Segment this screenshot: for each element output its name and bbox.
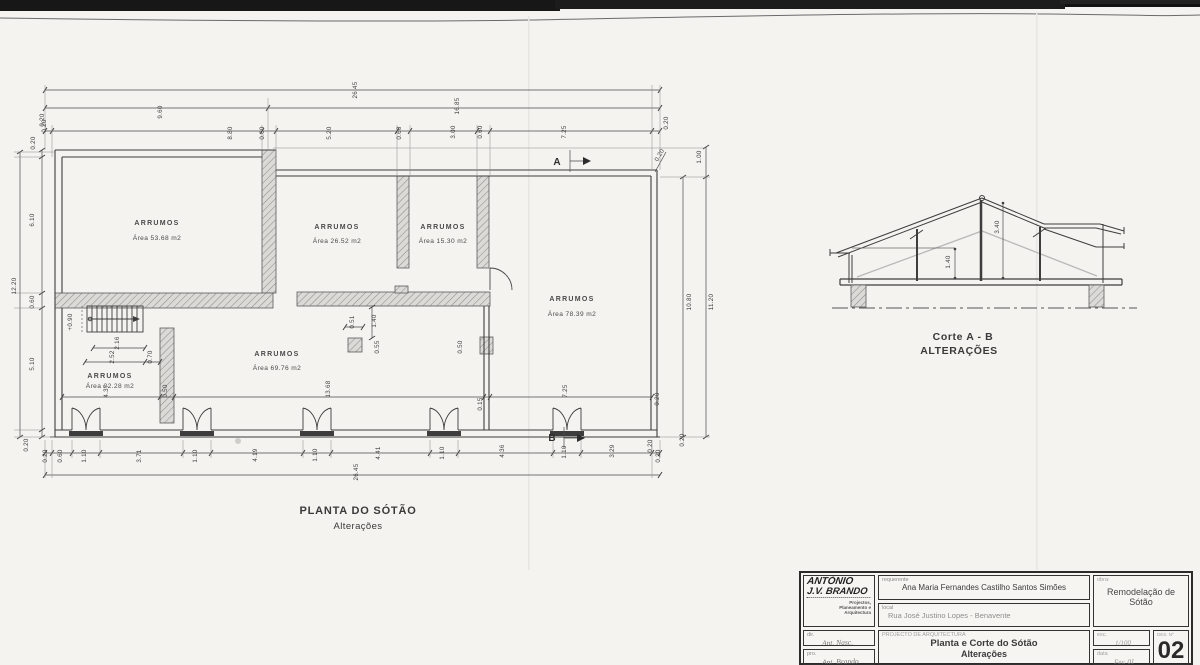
obra-line1: Remodelação de [1097, 587, 1185, 597]
plan-subtitle: Alterações [334, 521, 383, 532]
title-block-obra-cell: obra: Remodelação de Sótão [1093, 575, 1189, 627]
dimension-label: 5.10 [29, 357, 36, 371]
dimension-label: 0.60 [29, 295, 36, 309]
dimension-label: 2.52 [109, 350, 116, 364]
section-caption-sub: ALTERAÇÕES [920, 344, 998, 357]
dimension-label: 0.60 [57, 449, 64, 463]
dimension-label: 3.00 [450, 125, 457, 139]
dimension-label: 0.50 [457, 340, 464, 354]
esc-label: esc. [1097, 632, 1107, 638]
dimension-label: +0.90 [67, 313, 74, 330]
dimension-label: 11.20 [708, 293, 715, 310]
dimension-label: 0.20 [679, 433, 686, 447]
dir-label: dir. [807, 632, 814, 638]
floor-plan: 26.459.6016.850.208.800.605.200.603.000.… [11, 81, 715, 532]
logo-small-3: Arquitectura [807, 610, 871, 615]
section-mark-letter: B [548, 433, 555, 444]
des-value: 02 [1157, 638, 1185, 664]
plan-title: PLANTA DO SÓTÃO [299, 504, 416, 517]
room-name-label: ARRUMOS [254, 351, 299, 358]
pro-label: pro. [807, 651, 816, 657]
room-name-label: ARRUMOS [87, 373, 132, 380]
dimension-label: 9.60 [157, 105, 164, 119]
dimension-label: 0.20 [654, 392, 661, 406]
room-name-label: ARRUMOS [420, 224, 465, 231]
dimension-ticks [17, 87, 709, 478]
dimension-label: 1.10 [439, 446, 446, 460]
dimension-label: 0.55 [374, 340, 381, 354]
section-dimension-label: 3.40 [994, 220, 1001, 234]
dimension-label: 1.40 [371, 314, 378, 328]
dimension-label: 1.10 [312, 448, 319, 462]
dimension-label: 13.68 [325, 380, 332, 397]
dimension-label: 4.36 [499, 444, 506, 458]
title-block: ANTÓNIO J.V. BRANDO Projectos, Planeamen… [799, 571, 1193, 665]
dimension-label: 7.25 [561, 125, 568, 139]
dimension-label: 1.10 [561, 445, 568, 459]
dimension-label: 26.45 [353, 463, 360, 480]
room-area-label: Área 53.68 m2 [133, 233, 181, 242]
logo-line2: J.V. BRANDO [806, 587, 872, 598]
dimension-label: 3.71 [136, 449, 143, 463]
dimension-label: 0.20 [23, 438, 30, 452]
dimension-label: 10.80 [686, 293, 693, 310]
room-area-label: Área 69.76 m2 [253, 363, 301, 372]
title-block-requerente-cell: requerente Ana Maria Fernandes Castilho … [878, 575, 1090, 600]
dimension-label: 2.16 [114, 336, 121, 350]
dimension-label: 6.10 [29, 213, 36, 227]
section-mark-letter: A [553, 157, 560, 168]
dimension-label: 3.29 [609, 444, 616, 458]
title-block-local-cell: local Rua José Justino Lopes - Benavente [878, 603, 1090, 627]
dir-value: Ant. Nasc. [822, 637, 853, 646]
section-dimension-label: 1.40 [945, 255, 952, 269]
section-mark-a-arrow [583, 157, 591, 165]
local-value: Rua José Justino Lopes - Benavente [882, 611, 1086, 620]
dimension-label: 8.80 [227, 126, 234, 140]
esc-value: 1/100 [1115, 639, 1131, 646]
dimension-label: 0.20 [42, 449, 49, 463]
plan-dimension-labels: 26.459.6016.850.208.800.605.200.603.000.… [11, 81, 715, 480]
dimension-label: 0.20 [663, 116, 670, 130]
dimension-label: 0.51 [349, 315, 356, 329]
room-area-label: Área 15.30 m2 [419, 236, 467, 245]
exterior-doors [69, 408, 584, 436]
dimension-label: 5.20 [326, 126, 333, 140]
dimension-label: 0.20 [30, 136, 37, 150]
title-block-projecto-cell: PROJECTO DE ARQUITECTURA Planta e Corte … [878, 630, 1090, 665]
dimension-label: 7.25 [562, 384, 569, 398]
section-dim-lines [955, 203, 1003, 278]
section-old-roof [857, 231, 1097, 277]
room-area-label: Área 22.28 m2 [86, 381, 134, 390]
projecto-line2: Alterações [882, 649, 1086, 659]
dimension-label: 0.60 [396, 126, 403, 140]
pro-value: Ant. Brando [822, 656, 859, 665]
dimension-label: 0.60 [477, 125, 484, 139]
section-caption: Corte A - B [933, 331, 994, 343]
stairs [82, 306, 143, 332]
dimension-label: 12.20 [11, 277, 18, 294]
section-braces [910, 228, 1046, 239]
dimension-label: 0.70 [147, 350, 154, 364]
section-drawing: 3.401.40 Corte A - B ALTERAÇÕES [830, 196, 1137, 358]
dimension-label: 1.10 [81, 449, 88, 463]
obra-label: obra: [1097, 577, 1185, 583]
section-footings [851, 285, 1104, 307]
room-name-label: ARRUMOS [314, 224, 359, 231]
dimension-label: 0.50 [162, 384, 169, 398]
drawing-canvas: 26.459.6016.850.208.800.605.200.603.000.… [0, 0, 1200, 665]
section-dimension-labels: 3.401.40 [945, 220, 1001, 269]
title-block-esc-cell: esc. 1/100 [1093, 630, 1150, 646]
dimension-label: 0.15 [477, 397, 484, 411]
dimension-label: 0.20 [655, 449, 662, 463]
room-name-label: ARRUMOS [134, 220, 179, 227]
dimension-label: 16.85 [454, 97, 461, 114]
dimension-label: 1.00 [696, 150, 703, 164]
title-block-logo: ANTÓNIO J.V. BRANDO Projectos, Planeamen… [803, 575, 875, 627]
extension-lines [14, 85, 710, 478]
title-block-data-cell: data Fev. 01 [1093, 649, 1150, 665]
dimension-label: 26.45 [352, 81, 359, 98]
dimension-label: 0.20 [39, 113, 46, 127]
title-block-des-cell: DES. Nº 02 [1153, 630, 1189, 665]
dimension-label: 4.19 [252, 448, 259, 462]
section-dim-dots [954, 202, 1005, 280]
room-area-label: Área 78.39 m2 [548, 309, 596, 318]
title-block-pro-cell: pro. Ant. Brando [803, 649, 875, 665]
room-area-label: Área 26.52 m2 [313, 236, 361, 245]
dimension-label: 0.20 [647, 439, 654, 453]
dimension-label: 0.60 [259, 126, 266, 140]
data-value: Fev. 01 [1114, 658, 1135, 665]
dimension-label: 1.10 [192, 449, 199, 463]
title-block-dir-cell: dir. Ant. Nasc. [803, 630, 875, 646]
interior-door-swing [490, 268, 512, 290]
data-label: data [1097, 651, 1108, 657]
room-name-label: ARRUMOS [549, 296, 594, 303]
requerente-value: Ana Maria Fernandes Castilho Santos Simõ… [882, 583, 1086, 592]
dimension-label: 4.41 [375, 446, 382, 460]
projecto-line1: Planta e Corte do Sótão [882, 638, 1086, 649]
obra-line2: Sótão [1097, 597, 1185, 607]
